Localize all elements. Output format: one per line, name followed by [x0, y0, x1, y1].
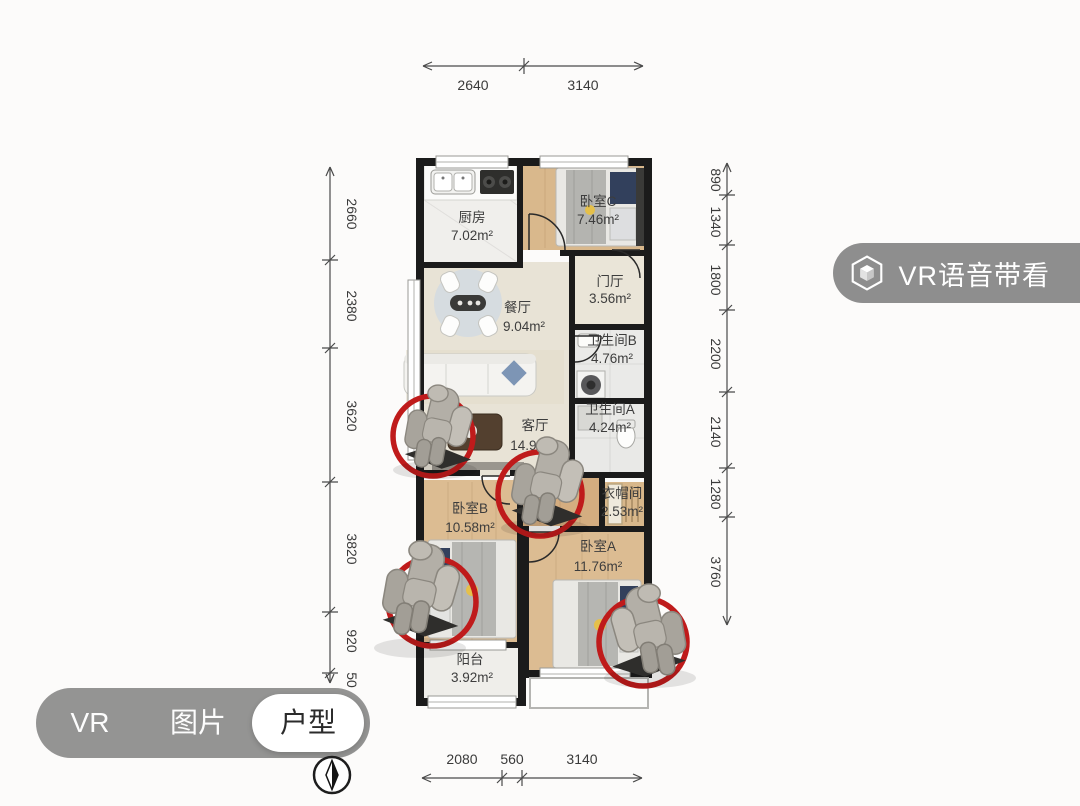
- screen: 厨房 7.02m² 卧室C 7.46m² 门厅 3.56m² 餐厅 9.04m²…: [0, 0, 1080, 806]
- tab-vr-label: VR: [71, 707, 110, 738]
- dim-right-3: 1800: [708, 264, 724, 295]
- svg-text:2.53m²: 2.53m²: [601, 504, 644, 519]
- dim-right-4: 2200: [708, 338, 724, 369]
- svg-text:衣帽间: 衣帽间: [602, 486, 643, 501]
- dim-right-2: 1340: [708, 206, 724, 237]
- dim-bottom-1: 2080: [446, 751, 477, 767]
- floor-plan-image: 厨房 7.02m² 卧室C 7.46m² 门厅 3.56m² 餐厅 9.04m²…: [0, 0, 1080, 806]
- svg-text:餐厅: 餐厅: [504, 300, 531, 315]
- svg-text:9.04m²: 9.04m²: [503, 319, 546, 334]
- svg-text:4.76m²: 4.76m²: [591, 351, 634, 366]
- svg-text:3.56m²: 3.56m²: [589, 291, 632, 306]
- svg-text:7.02m²: 7.02m²: [451, 228, 494, 243]
- tab-floorplan[interactable]: 户型: [252, 694, 364, 752]
- tab-floorplan-label: 户型: [280, 707, 336, 738]
- dim-top-1: 2640: [457, 77, 488, 93]
- dining-table: [434, 269, 502, 338]
- svg-text:厨房: 厨房: [459, 210, 486, 225]
- dim-left-6: 50: [344, 672, 360, 688]
- compass-north-indicator[interactable]: [310, 753, 354, 797]
- hexagon-cube-icon: [849, 255, 885, 291]
- north-compass-icon: [310, 753, 354, 797]
- dim-right-6: 1280: [708, 478, 724, 509]
- dim-bottom-3: 3140: [566, 751, 597, 767]
- view-mode-tabs: VR 图片 户型: [36, 688, 370, 758]
- tab-pictures[interactable]: 图片: [144, 688, 252, 758]
- dim-right-5: 2140: [708, 416, 724, 447]
- svg-text:客厅: 客厅: [522, 417, 549, 433]
- svg-text:3.92m²: 3.92m²: [451, 670, 494, 685]
- tab-vr[interactable]: VR: [36, 688, 144, 758]
- kitchen-counter: [424, 164, 517, 200]
- svg-text:卧室B: 卧室B: [452, 500, 488, 516]
- dim-left-4: 3820: [344, 533, 360, 564]
- dim-right-1: 890: [708, 168, 724, 192]
- svg-text:卫生间B: 卫生间B: [587, 333, 637, 348]
- svg-text:11.76m²: 11.76m²: [574, 559, 623, 574]
- svg-text:7.46m²: 7.46m²: [577, 212, 620, 227]
- svg-text:阳台: 阳台: [457, 652, 484, 667]
- dim-left-1: 2660: [344, 198, 360, 229]
- dim-left-3: 3620: [344, 400, 360, 431]
- svg-text:4.24m²: 4.24m²: [589, 420, 632, 435]
- vr-voice-tour-label: VR语音带看: [898, 254, 1050, 293]
- tab-pictures-label: 图片: [170, 707, 226, 738]
- svg-text:10.58m²: 10.58m²: [445, 520, 495, 535]
- dim-left-2: 2380: [344, 290, 360, 321]
- svg-text:卫生间A: 卫生间A: [585, 402, 635, 417]
- dim-top-2: 3140: [567, 77, 598, 93]
- dim-right-7: 3760: [708, 556, 724, 587]
- svg-text:卧室C: 卧室C: [580, 193, 617, 209]
- svg-text:卧室A: 卧室A: [580, 538, 616, 554]
- svg-text:门厅: 门厅: [597, 274, 624, 289]
- dim-bottom-2: 560: [500, 751, 524, 767]
- dim-left-5: 920: [344, 629, 360, 653]
- vr-voice-tour-button[interactable]: VR语音带看: [833, 243, 1080, 303]
